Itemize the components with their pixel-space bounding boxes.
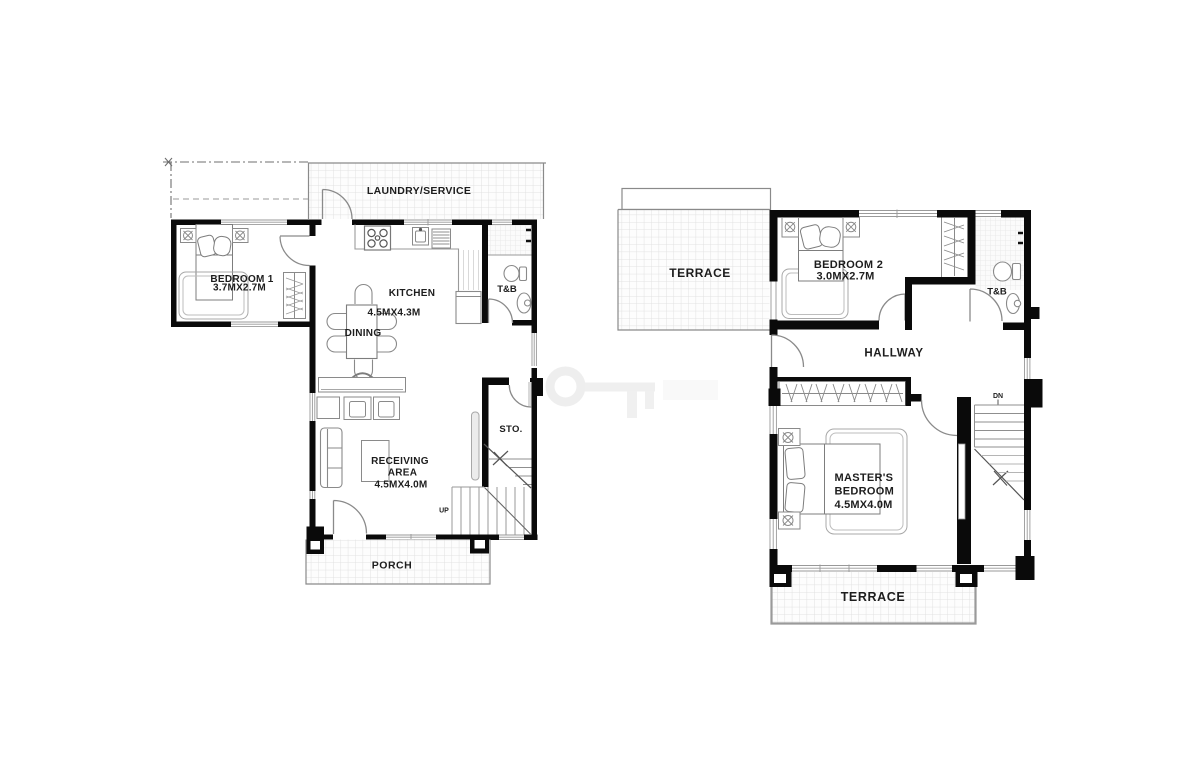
svg-text:T&B: T&B: [497, 284, 517, 295]
svg-text:RECEIVING: RECEIVING: [371, 456, 429, 467]
svg-text:AREA: AREA: [388, 468, 418, 479]
svg-text:4.5MX4.0M: 4.5MX4.0M: [375, 480, 428, 491]
svg-text:4.5MX4.0M: 4.5MX4.0M: [835, 499, 893, 511]
svg-text:LAUNDRY/SERVICE: LAUNDRY/SERVICE: [367, 185, 471, 197]
svg-text:PORCH: PORCH: [372, 560, 412, 572]
svg-text:T&B: T&B: [987, 287, 1007, 298]
svg-text:STO.: STO.: [499, 424, 522, 435]
svg-text:TERRACE: TERRACE: [669, 266, 731, 280]
svg-text:UP: UP: [439, 508, 449, 515]
svg-text:KITCHEN: KITCHEN: [389, 288, 436, 299]
svg-text:BEDROOM: BEDROOM: [835, 486, 895, 498]
svg-text:TERRACE: TERRACE: [841, 590, 906, 604]
svg-text:DN: DN: [993, 393, 1003, 400]
svg-text:4.5MX4.3M: 4.5MX4.3M: [368, 308, 421, 319]
svg-text:BEDROOM 2: BEDROOM 2: [814, 259, 883, 271]
svg-text:3.0MX2.7M: 3.0MX2.7M: [816, 271, 874, 283]
svg-text:MASTER'S: MASTER'S: [835, 472, 894, 484]
svg-text:DINING: DINING: [345, 328, 382, 339]
svg-text:HALLWAY: HALLWAY: [864, 348, 923, 360]
svg-text:3.7MX2.7M: 3.7MX2.7M: [213, 283, 266, 294]
